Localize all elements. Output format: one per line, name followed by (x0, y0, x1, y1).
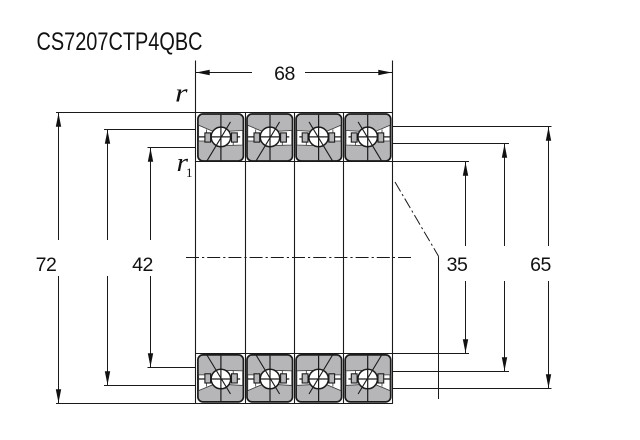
svg-text:35: 35 (447, 254, 468, 276)
svg-text:72: 72 (36, 254, 57, 276)
svg-text:65: 65 (530, 254, 551, 276)
svg-text:68: 68 (274, 63, 295, 85)
svg-text:CS7207CTP4QBC: CS7207CTP4QBC (37, 28, 203, 56)
svg-text:1: 1 (186, 165, 193, 180)
svg-text:42: 42 (132, 254, 153, 276)
svg-text:r: r (175, 79, 189, 108)
